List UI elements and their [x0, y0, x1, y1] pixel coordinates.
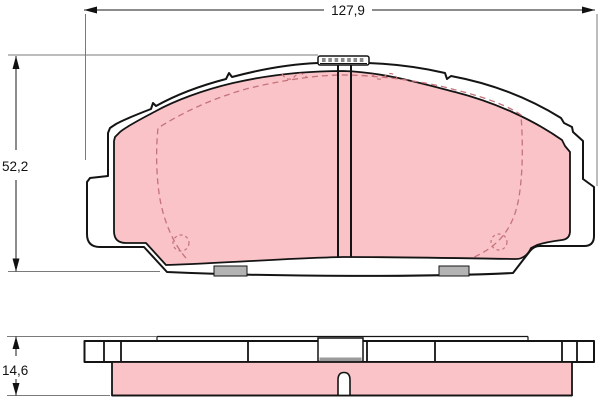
bottom-tab-right [439, 266, 469, 276]
center-clip-stripe [320, 358, 362, 362]
height-arrow-top [13, 56, 20, 69]
center-groove-notch [338, 373, 350, 396]
drawing-svg: 127,9 52,2 14,6 [0, 0, 600, 400]
thickness-arrow-top [13, 337, 20, 350]
width-dimension-label: 127,9 [331, 3, 365, 18]
thickness-dimension-label: 14,6 [2, 363, 28, 378]
width-arrow-left [84, 7, 97, 14]
height-arrow-bottom [13, 259, 20, 272]
pad-front-view [87, 56, 594, 276]
brake-pad-drawing: 127,9 52,2 14,6 [0, 0, 600, 400]
height-dimension-label: 52,2 [2, 159, 28, 174]
pad-bottom-view [85, 337, 595, 396]
bottom-tab-left [214, 266, 247, 276]
wear-indicator-tab [318, 56, 369, 65]
width-arrow-right [582, 7, 595, 14]
thickness-arrow-bottom [13, 383, 20, 396]
